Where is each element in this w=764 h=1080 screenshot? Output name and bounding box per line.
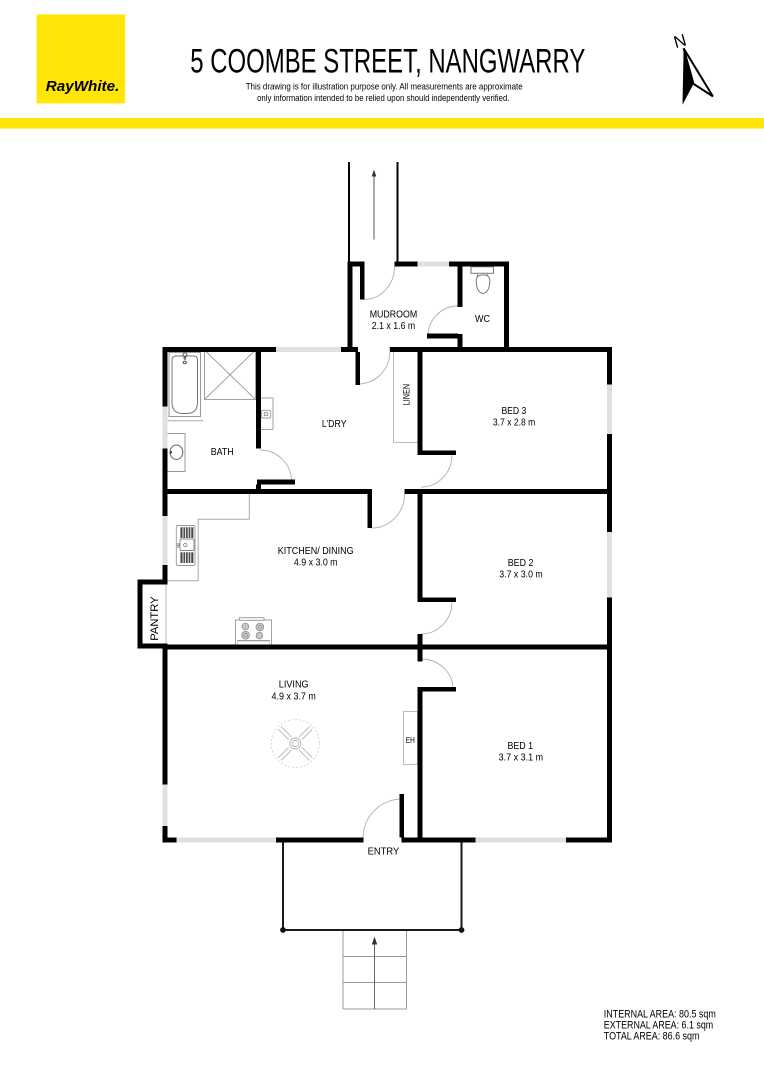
svg-text:LINEN: LINEN [402,384,412,405]
svg-text:RayWhite.: RayWhite. [46,78,120,95]
svg-text:3.7 x 2.8 m: 3.7 x 2.8 m [493,418,536,429]
svg-text:PANTRY: PANTRY [149,596,161,641]
svg-text:BED 3: BED 3 [501,406,526,417]
svg-text:BED 2: BED 2 [508,558,534,569]
svg-text:L’DRY: L’DRY [322,419,347,430]
svg-text:4.9 x 3.7 m: 4.9 x 3.7 m [272,692,316,703]
svg-text:ENTRY: ENTRY [368,847,400,858]
svg-text:only information intended to b: only information intended to be relied u… [257,93,509,103]
svg-text:2.1 x 1.6 m: 2.1 x 1.6 m [372,321,415,332]
svg-text:LIVING: LIVING [279,680,309,691]
svg-text:EH: EH [406,736,415,745]
svg-text:MUDROOM: MUDROOM [370,310,418,321]
svg-text:TOTAL AREA: 86.6 sqm: TOTAL AREA: 86.6 sqm [604,1030,700,1042]
svg-text:BATH: BATH [211,447,234,458]
svg-text:KITCHEN/ DINING: KITCHEN/ DINING [278,546,354,557]
svg-text:3.7 x 3.1 m: 3.7 x 3.1 m [499,753,544,764]
svg-text:This drawing is for illustrati: This drawing is for illustration purpose… [246,82,523,92]
svg-text:3.7 x 3.0 m: 3.7 x 3.0 m [499,570,542,581]
svg-text:WC: WC [475,314,490,325]
svg-text:4.9 x 3.0 m: 4.9 x 3.0 m [294,558,338,569]
svg-text:BED 1: BED 1 [507,741,533,752]
svg-text:5 COOMBE STREET, NANGWARRY: 5 COOMBE STREET, NANGWARRY [190,43,585,81]
